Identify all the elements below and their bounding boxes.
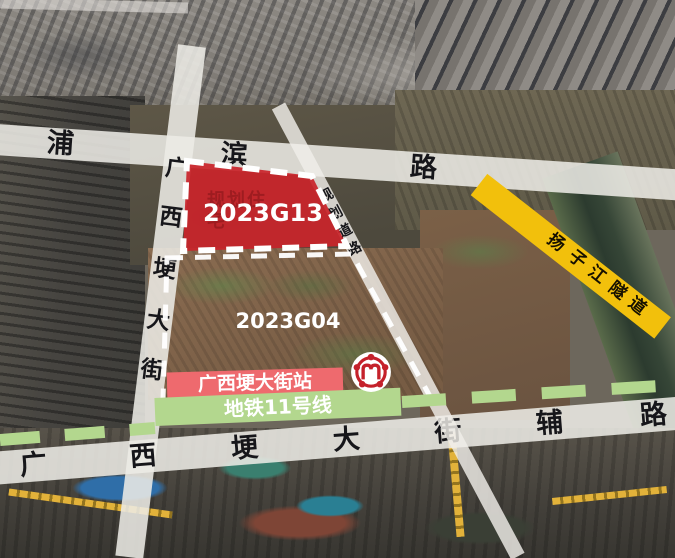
parcel-overlay — [0, 0, 675, 558]
metro-line-dashed-right — [402, 385, 675, 402]
nanjing-metro-logo-icon — [350, 351, 392, 393]
parcel-g13-id-label: 2023G13 — [196, 199, 330, 227]
parcel-g04-id-label: 2023G04 — [228, 309, 348, 333]
aerial-land-map: 浦 滨 路 广 西 埂 大 街 广 西 埂 大 街 辅 路 规 划 道 路 扬 … — [0, 0, 675, 558]
metro-line-dashed-left — [0, 428, 155, 440]
